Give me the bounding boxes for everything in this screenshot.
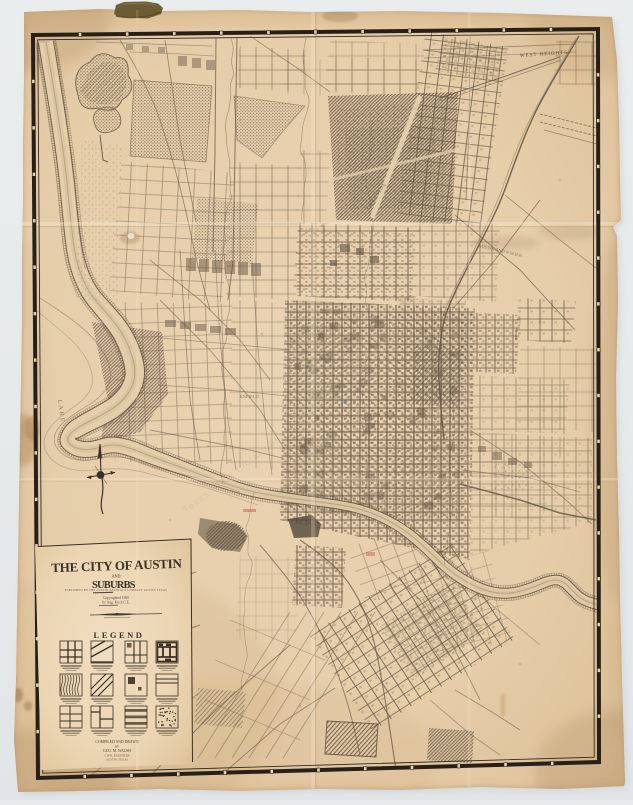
svg-text:Copyrighted 1900: Copyrighted 1900	[103, 596, 129, 600]
svg-text:PUBLISHED BY THE AUSTIN ABSTRA: PUBLISHED BY THE AUSTIN ABSTRACT COMPANY…	[65, 589, 168, 592]
svg-text:COMPILED AND DRAWN: COMPILED AND DRAWN	[95, 740, 139, 744]
svg-text:by Aug. Koch C.E.: by Aug. Koch C.E.	[102, 601, 129, 605]
svg-text:AND: AND	[111, 574, 120, 579]
svg-text:GEO. M. WALSH: GEO. M. WALSH	[103, 749, 131, 753]
svg-text:LEGEND: LEGEND	[94, 630, 145, 640]
svg-text:BY: BY	[115, 745, 120, 749]
